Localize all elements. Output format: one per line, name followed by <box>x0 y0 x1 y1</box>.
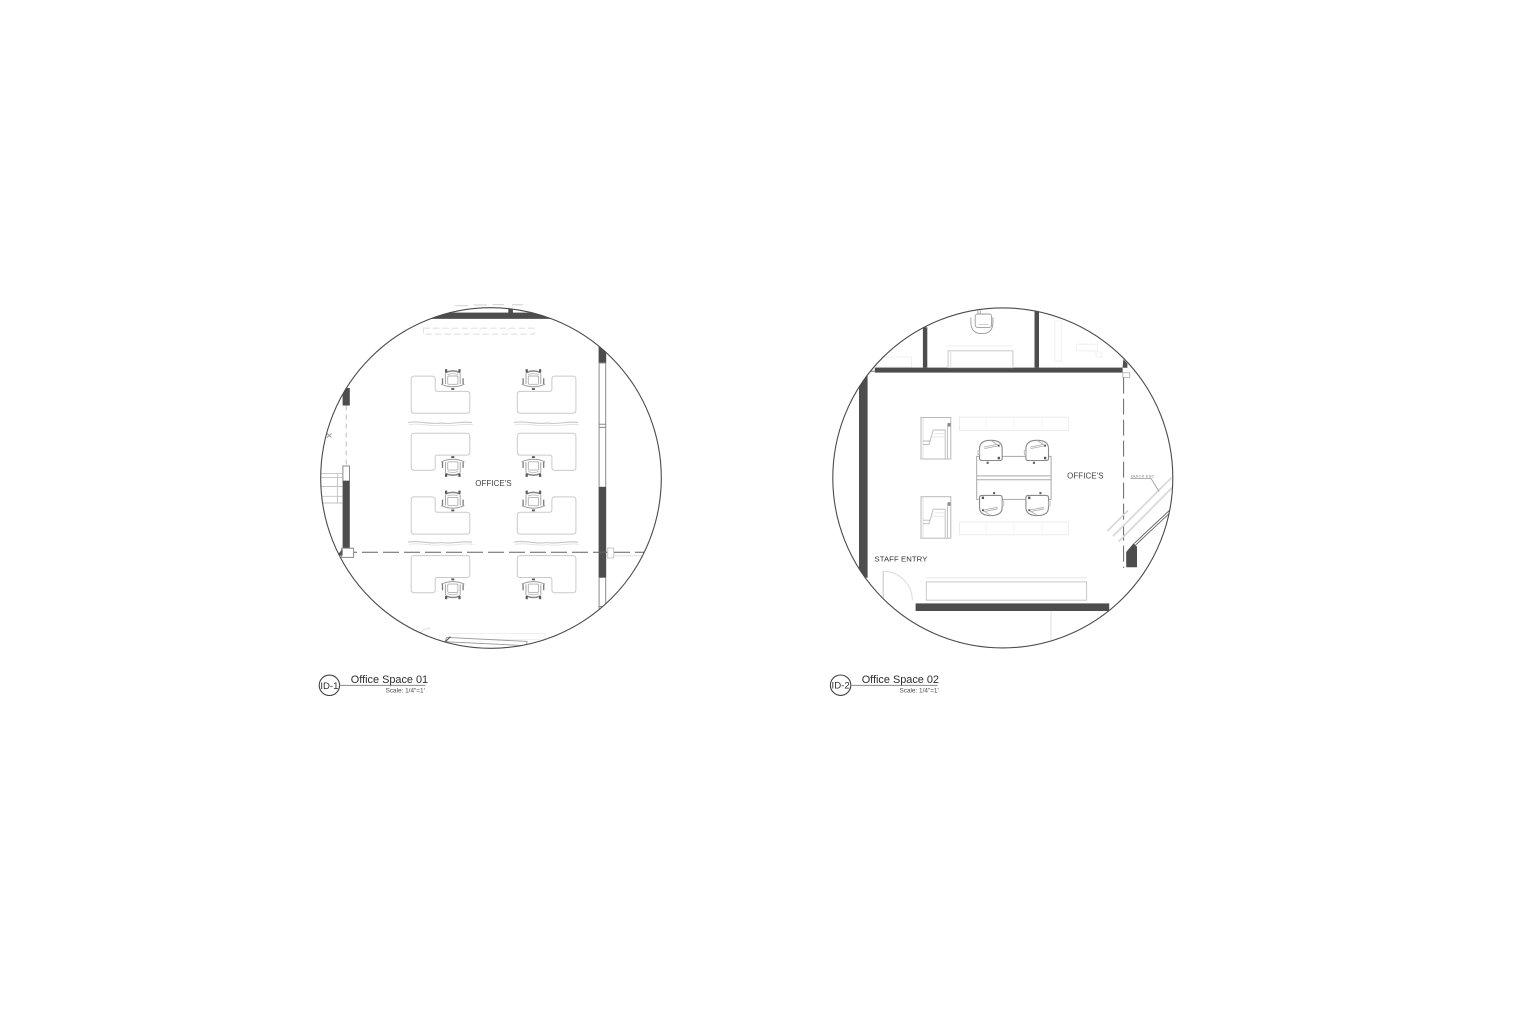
svg-text:Office Space 01: Office Space 01 <box>351 674 428 686</box>
svg-text:Scale: 1/4"=1': Scale: 1/4"=1' <box>386 688 425 695</box>
svg-text:QUICK ESC: QUICK ESC <box>1131 473 1155 478</box>
svg-text:OFFICE'S: OFFICE'S <box>1067 471 1104 480</box>
svg-text:ID-2: ID-2 <box>832 681 850 692</box>
svg-text:OFFICE'S: OFFICE'S <box>475 479 512 488</box>
svg-text:Scale: 1/4"=1': Scale: 1/4"=1' <box>900 688 939 695</box>
svg-text:ID-1: ID-1 <box>320 681 338 692</box>
svg-text:Office Space 02: Office Space 02 <box>862 674 939 686</box>
svg-text:STAFF ENTRY: STAFF ENTRY <box>875 554 928 563</box>
